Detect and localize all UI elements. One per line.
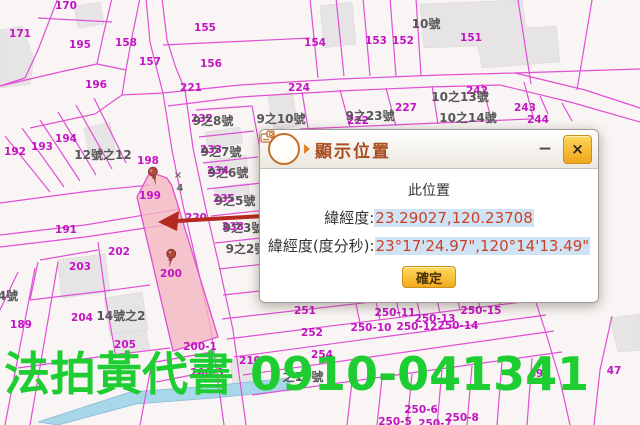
close-button[interactable]: ×: [563, 135, 592, 164]
latlng-dms-row: 緯經度(度分秒):23°17'24.97",120°14'13.49": [268, 235, 590, 256]
watermark-text: 法拍黃代書 0910-041341: [4, 351, 589, 397]
latlng-decimal-row: 緯經度:23.29027,120.23708: [324, 207, 534, 228]
title-arrow-icon: [304, 144, 310, 154]
dialog-body: 此位置 緯經度:23.29027,120.23708 緯經度(度分秒):23°1…: [260, 169, 598, 302]
show-location-dialog: 顯示位置 − × 此位置 緯經度:23.29027,120.23708 緯經度(…: [259, 129, 599, 303]
latlng-dms-label: 緯經度(度分秒):: [268, 237, 375, 255]
confirm-button[interactable]: 確定: [402, 266, 456, 288]
minimize-button[interactable]: −: [535, 141, 555, 158]
dialog-titlebar[interactable]: 顯示位置 − ×: [260, 130, 598, 169]
location-heading: 此位置: [408, 180, 450, 200]
latlng-decimal-value: 23.29027,120.23708: [374, 209, 533, 227]
map-viewer: 1701711951581571551561541531521511962212…: [0, 0, 640, 425]
latlng-decimal-label: 緯經度:: [324, 209, 374, 227]
dialog-title: 顯示位置: [315, 137, 391, 162]
latlng-dms-value: 23°17'24.97",120°14'13.49": [375, 237, 591, 255]
show-location-icon: [268, 133, 300, 165]
